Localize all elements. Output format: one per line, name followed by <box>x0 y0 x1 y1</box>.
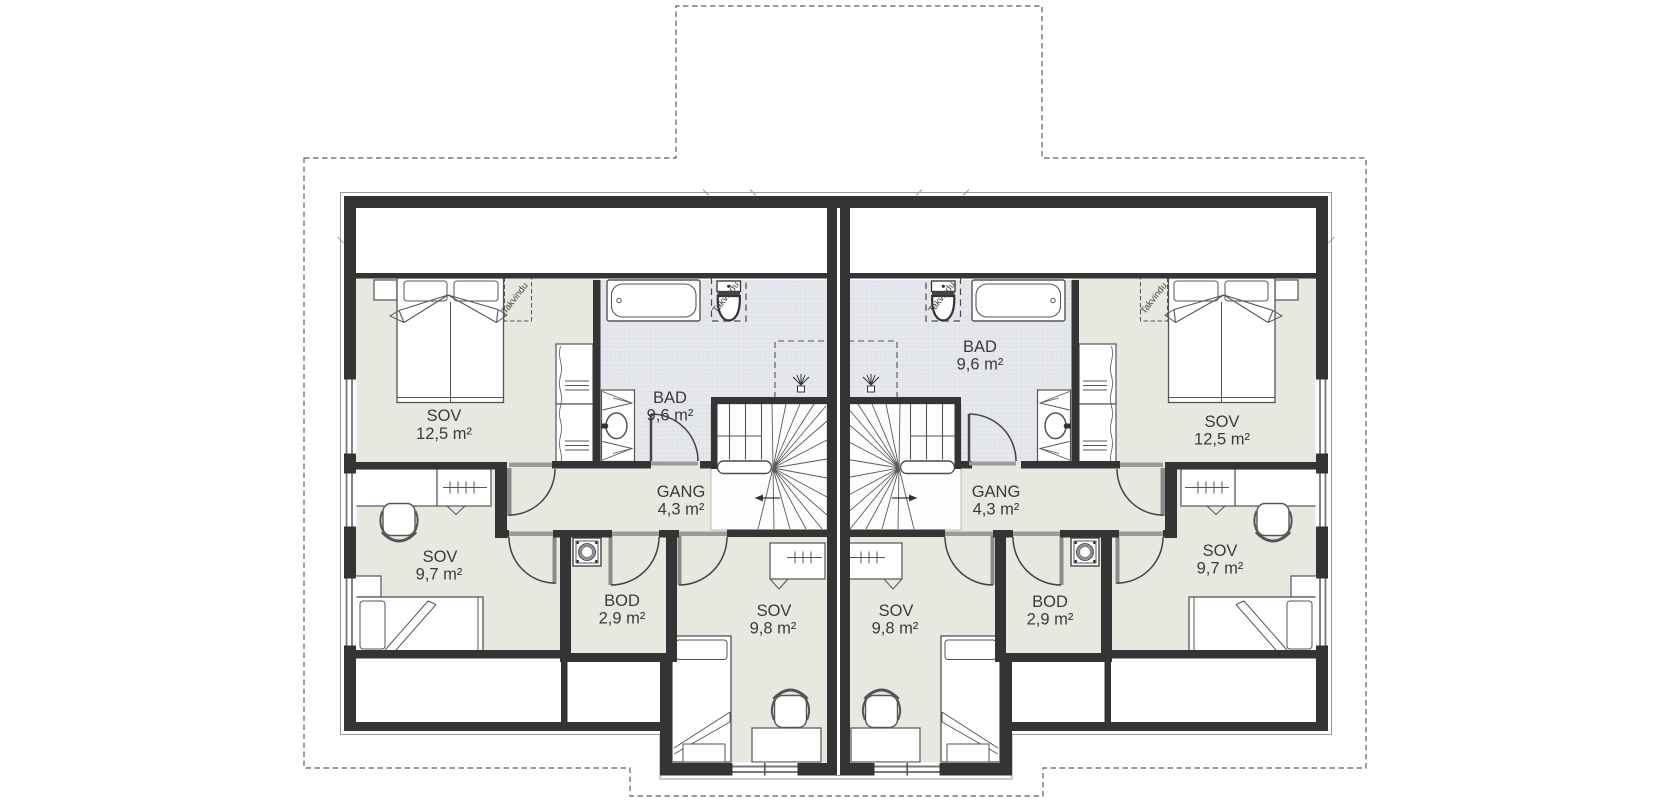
svg-text:4,3 m²: 4,3 m² <box>973 501 1020 519</box>
svg-text:12,5 m²: 12,5 m² <box>416 425 472 443</box>
svg-text:SOV: SOV <box>879 602 914 620</box>
svg-text:9,8 m²: 9,8 m² <box>872 620 919 638</box>
svg-text:SOV: SOV <box>423 548 458 566</box>
svg-text:SOV: SOV <box>1203 542 1238 560</box>
svg-text:SOV: SOV <box>757 602 792 620</box>
svg-text:BAD: BAD <box>963 338 997 356</box>
svg-text:4,3 m²: 4,3 m² <box>658 501 705 519</box>
svg-text:GANG: GANG <box>972 483 1021 501</box>
svg-text:9,8 m²: 9,8 m² <box>750 620 797 638</box>
svg-text:2,9 m²: 2,9 m² <box>599 610 646 628</box>
svg-text:GANG: GANG <box>657 483 706 501</box>
svg-text:BOD: BOD <box>1032 593 1068 611</box>
svg-text:12,5 m²: 12,5 m² <box>1194 431 1250 449</box>
svg-text:SOV: SOV <box>1205 413 1240 431</box>
svg-text:SOV: SOV <box>427 407 462 425</box>
svg-text:BAD: BAD <box>653 389 687 407</box>
svg-text:2,9 m²: 2,9 m² <box>1027 611 1074 629</box>
svg-text:9,7 m²: 9,7 m² <box>1197 560 1244 578</box>
svg-text:BOD: BOD <box>604 592 640 610</box>
svg-text:9,7 m²: 9,7 m² <box>416 566 463 584</box>
svg-text:9,6 m²: 9,6 m² <box>957 356 1004 374</box>
svg-text:9,6 m²: 9,6 m² <box>647 407 694 425</box>
